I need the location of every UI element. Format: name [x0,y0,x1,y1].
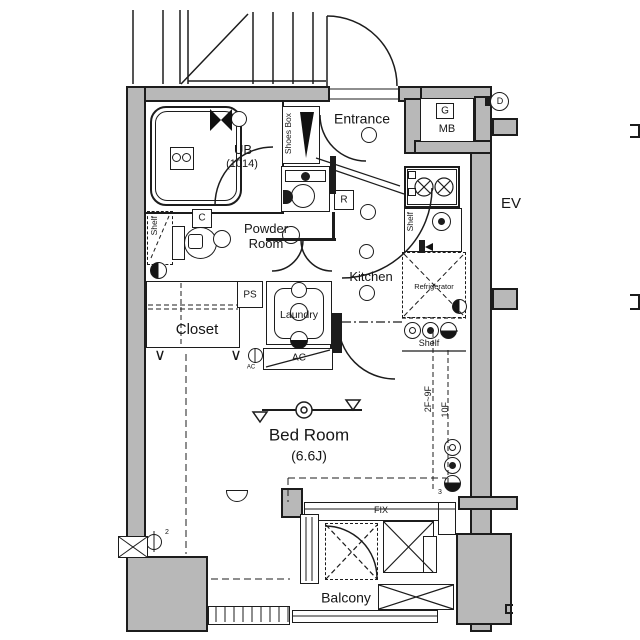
sink-faucet-mark [425,243,433,251]
curtain-rail-symbol [253,400,362,422]
powder-shelf-diag [151,216,169,258]
bedroom-dashed-lines [186,332,448,579]
counter-lines [402,318,466,351]
ac-diagonal [255,348,330,367]
plan-linework [0,0,640,640]
shoes-box-wedge [300,112,314,158]
entry-door [327,16,398,99]
entrance-step-lines [316,158,404,194]
bath-door-hinge-mark [210,109,232,131]
stove-burners [415,178,453,196]
closet-lines [148,283,238,346]
refrigerator-cross [404,254,464,316]
stairs [133,10,326,84]
balcony-cross-marks [326,522,453,609]
window-lines [216,509,455,622]
floor-plan: UB (1014) Shoes Box Entrance R C Shelf P… [0,0,640,640]
